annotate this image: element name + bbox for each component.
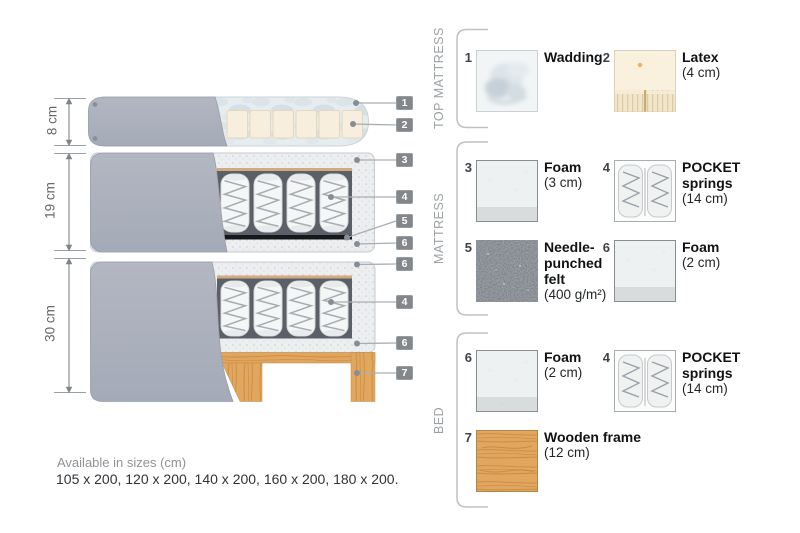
wood-swatch-icon bbox=[476, 430, 538, 492]
legend-item-foam-2cm: 6 Foam (2 cm) bbox=[592, 240, 720, 302]
legend-item-size: (4 cm) bbox=[682, 65, 720, 82]
group-label-top-mattress: TOP MATTRESS bbox=[430, 28, 448, 129]
legend-item-size: (14 cm) bbox=[682, 191, 740, 208]
needle-punched-felt-swatch-icon bbox=[476, 240, 538, 302]
wooden-frame bbox=[217, 353, 375, 402]
dimension-arrows bbox=[54, 99, 86, 393]
legend-item-name: POCKET springs bbox=[682, 349, 740, 381]
pocket-springs-swatch-icon bbox=[614, 160, 676, 222]
foam-swatch-icon bbox=[476, 160, 538, 222]
top-mattress-cross-section bbox=[89, 97, 369, 146]
legend-item-name: Foam bbox=[544, 159, 582, 175]
legend-item-bed-foam: 6 Foam (2 cm) bbox=[452, 350, 582, 412]
available-sizes-values: 105 x 200, 120 x 200, 140 x 200, 160 x 2… bbox=[56, 471, 399, 487]
legend-item-size: (14 cm) bbox=[682, 381, 740, 398]
legend-item-number: 6 bbox=[452, 350, 472, 365]
bed-construction-infographic: 8 cm 19 cm 30 cm 1 2 3 4 5 6 6 4 6 7 TOP… bbox=[0, 0, 800, 533]
legend-item-number: 4 bbox=[592, 160, 610, 175]
legend-item-number: 5 bbox=[452, 240, 472, 255]
callout-tag-4: 4 bbox=[396, 190, 413, 204]
dimension-label-mattress: 19 cm bbox=[43, 179, 58, 223]
felt-layer bbox=[217, 235, 352, 240]
legend-item-name: Foam bbox=[682, 239, 720, 255]
legend-item-number: 2 bbox=[592, 50, 610, 65]
legend-item-foam-3cm: 3 Foam (3 cm) bbox=[452, 160, 582, 222]
legend-item-size: (12 cm) bbox=[544, 445, 641, 462]
group-label-bed: BED bbox=[430, 331, 448, 509]
legend-item-number: 4 bbox=[592, 350, 610, 365]
available-sizes-label: Available in sizes (cm) bbox=[57, 455, 186, 470]
dimension-label-bed: 30 cm bbox=[43, 302, 58, 346]
legend-item-pocket-springs: 4 POCKET springs (14 cm) bbox=[592, 160, 740, 222]
legend-item-name: Wooden frame bbox=[544, 429, 641, 445]
callout-tag-7: 7 bbox=[396, 366, 413, 380]
wadding-swatch-icon bbox=[476, 50, 538, 112]
mattress-cross-section bbox=[91, 153, 375, 252]
legend-item-size: (3 cm) bbox=[544, 175, 582, 192]
legend-item-needle-punched-felt: 5 Needle- punched felt (400 g/m²) bbox=[452, 240, 606, 304]
callout-tag-6c: 6 bbox=[396, 336, 413, 350]
dimension-label-top-mattress: 8 cm bbox=[45, 99, 60, 143]
legend-item-latex: 2 Latex (4 cm) bbox=[592, 50, 720, 112]
topper-fabric-cover bbox=[89, 97, 228, 146]
legend-item-name: Latex bbox=[682, 49, 720, 65]
foam-swatch-icon bbox=[476, 350, 538, 412]
group-label-mattress: MATTRESS bbox=[430, 140, 448, 317]
callout-tag-6: 6 bbox=[396, 236, 413, 250]
legend-item-size: (2 cm) bbox=[544, 365, 582, 382]
legend-item-bed-pocket-springs: 4 POCKET springs (14 cm) bbox=[592, 350, 740, 412]
latex-swatch-icon bbox=[614, 50, 676, 112]
foam-swatch-icon bbox=[614, 240, 676, 302]
legend-item-wooden-frame: 7 Wooden frame (12 cm) bbox=[452, 430, 641, 492]
legend-item-number: 7 bbox=[452, 430, 472, 445]
legend-item-number: 6 bbox=[592, 240, 610, 255]
callout-tag-2: 2 bbox=[396, 118, 413, 132]
bed-cross-section bbox=[91, 262, 376, 402]
bed-fabric-cover bbox=[91, 262, 234, 402]
callout-tag-3: 3 bbox=[396, 153, 413, 167]
legend-item-number: 1 bbox=[452, 50, 472, 65]
callout-tag-5: 5 bbox=[396, 214, 413, 228]
mattress-fabric-cover bbox=[91, 153, 228, 252]
legend-item-size: (2 cm) bbox=[682, 255, 720, 272]
pocket-springs-swatch-icon bbox=[614, 350, 676, 412]
legend-item-name: Foam bbox=[544, 349, 582, 365]
callout-tag-1: 1 bbox=[396, 96, 413, 110]
legend-item-name: POCKET springs bbox=[682, 159, 740, 191]
callout-tag-6b: 6 bbox=[396, 257, 413, 271]
legend-item-number: 3 bbox=[452, 160, 472, 175]
legend-item-wadding: 1 Wadding bbox=[452, 50, 603, 112]
callout-tag-4b: 4 bbox=[396, 295, 413, 309]
